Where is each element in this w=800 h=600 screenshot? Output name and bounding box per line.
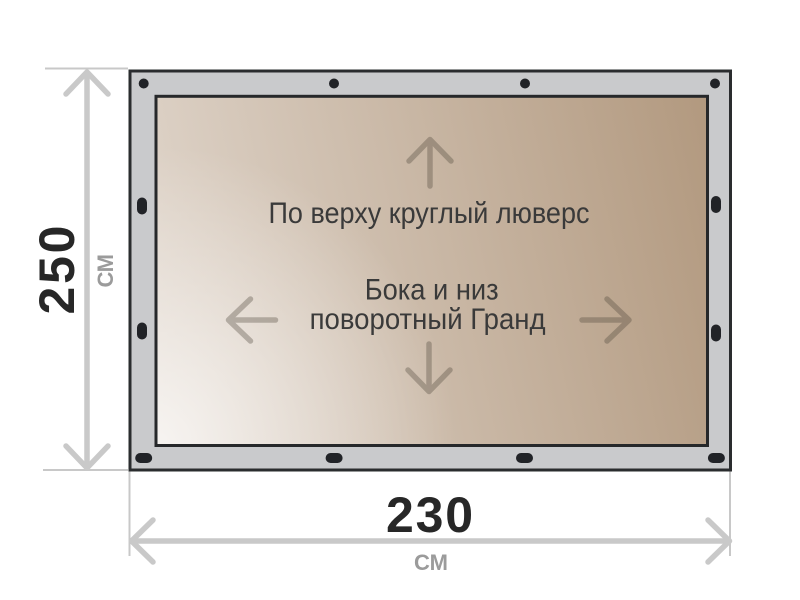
svg-text:поворотный Гранд: поворотный Гранд [310,303,546,336]
svg-text:250: 250 [29,226,85,315]
svg-text:Бока и низ: Бока и низ [365,274,499,307]
svg-text:СМ: СМ [414,550,448,575]
svg-text:СМ: СМ [93,254,118,288]
svg-text:По верху круглый люверс: По верху круглый люверс [269,197,590,230]
svg-text:230: 230 [386,487,473,543]
